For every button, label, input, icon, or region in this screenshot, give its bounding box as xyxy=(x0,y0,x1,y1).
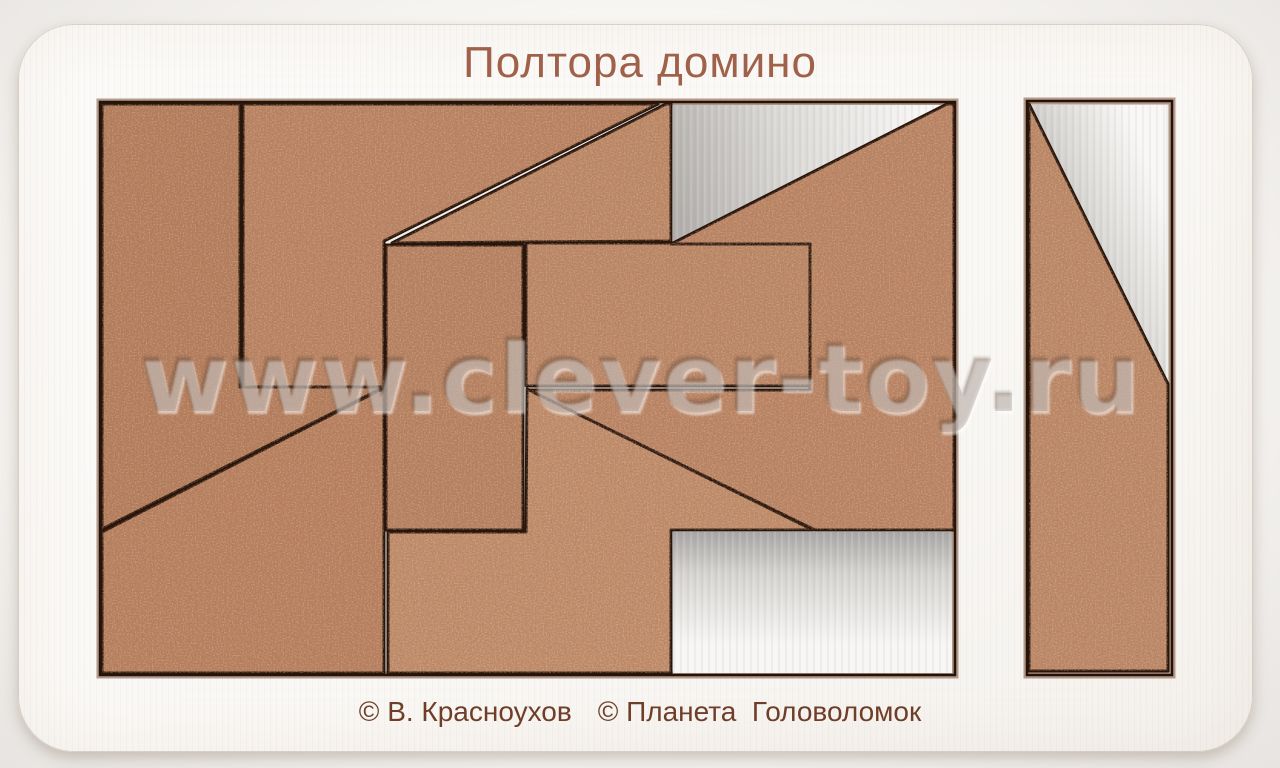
credit-publisher: © Планета Головоломок xyxy=(598,696,921,728)
empty-bottom-right-rect-texture xyxy=(673,532,952,673)
puzzle-graphic xyxy=(0,0,1280,768)
photo-stage: Полтора домино © В. Красноухов © Планета… xyxy=(0,0,1280,768)
puzzle-title: Полтора домино xyxy=(0,38,1280,88)
piece-middle-rect-grain-light xyxy=(526,243,811,386)
credit-author: © В. Красноухов xyxy=(359,696,572,728)
piece-tall-rect-grain-light xyxy=(386,245,523,530)
credits-line: © В. Красноухов © Планета Головоломок xyxy=(0,696,1280,728)
